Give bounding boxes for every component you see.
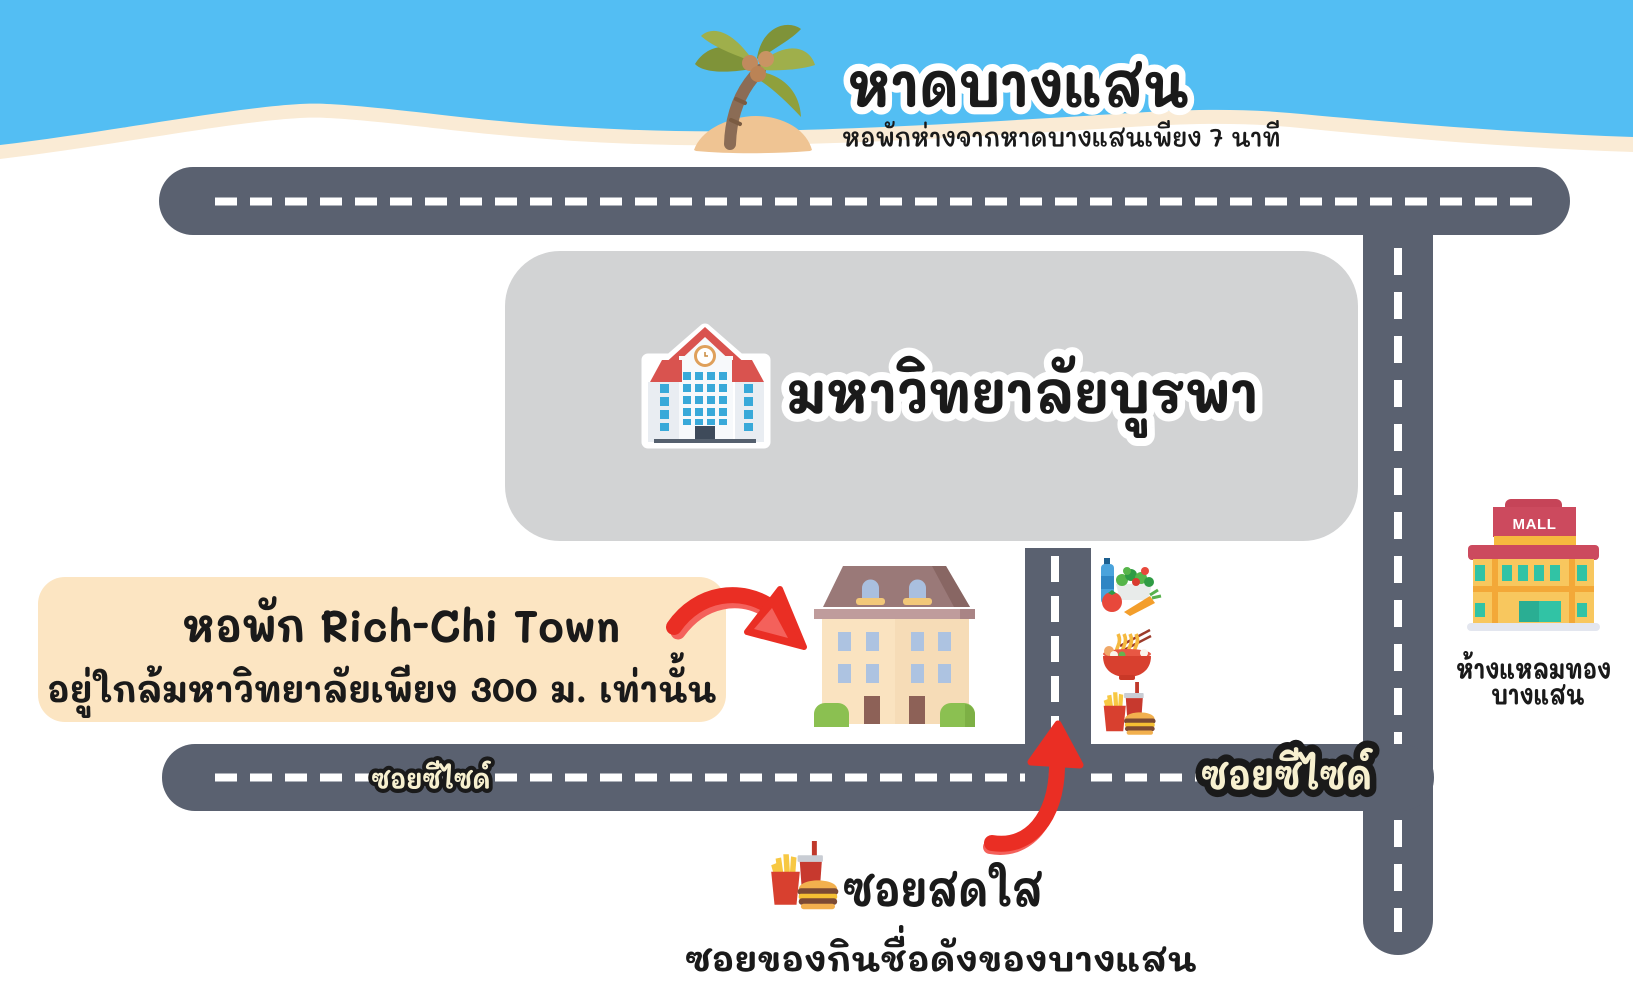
svg-text:MALL: MALL [1512, 516, 1556, 533]
